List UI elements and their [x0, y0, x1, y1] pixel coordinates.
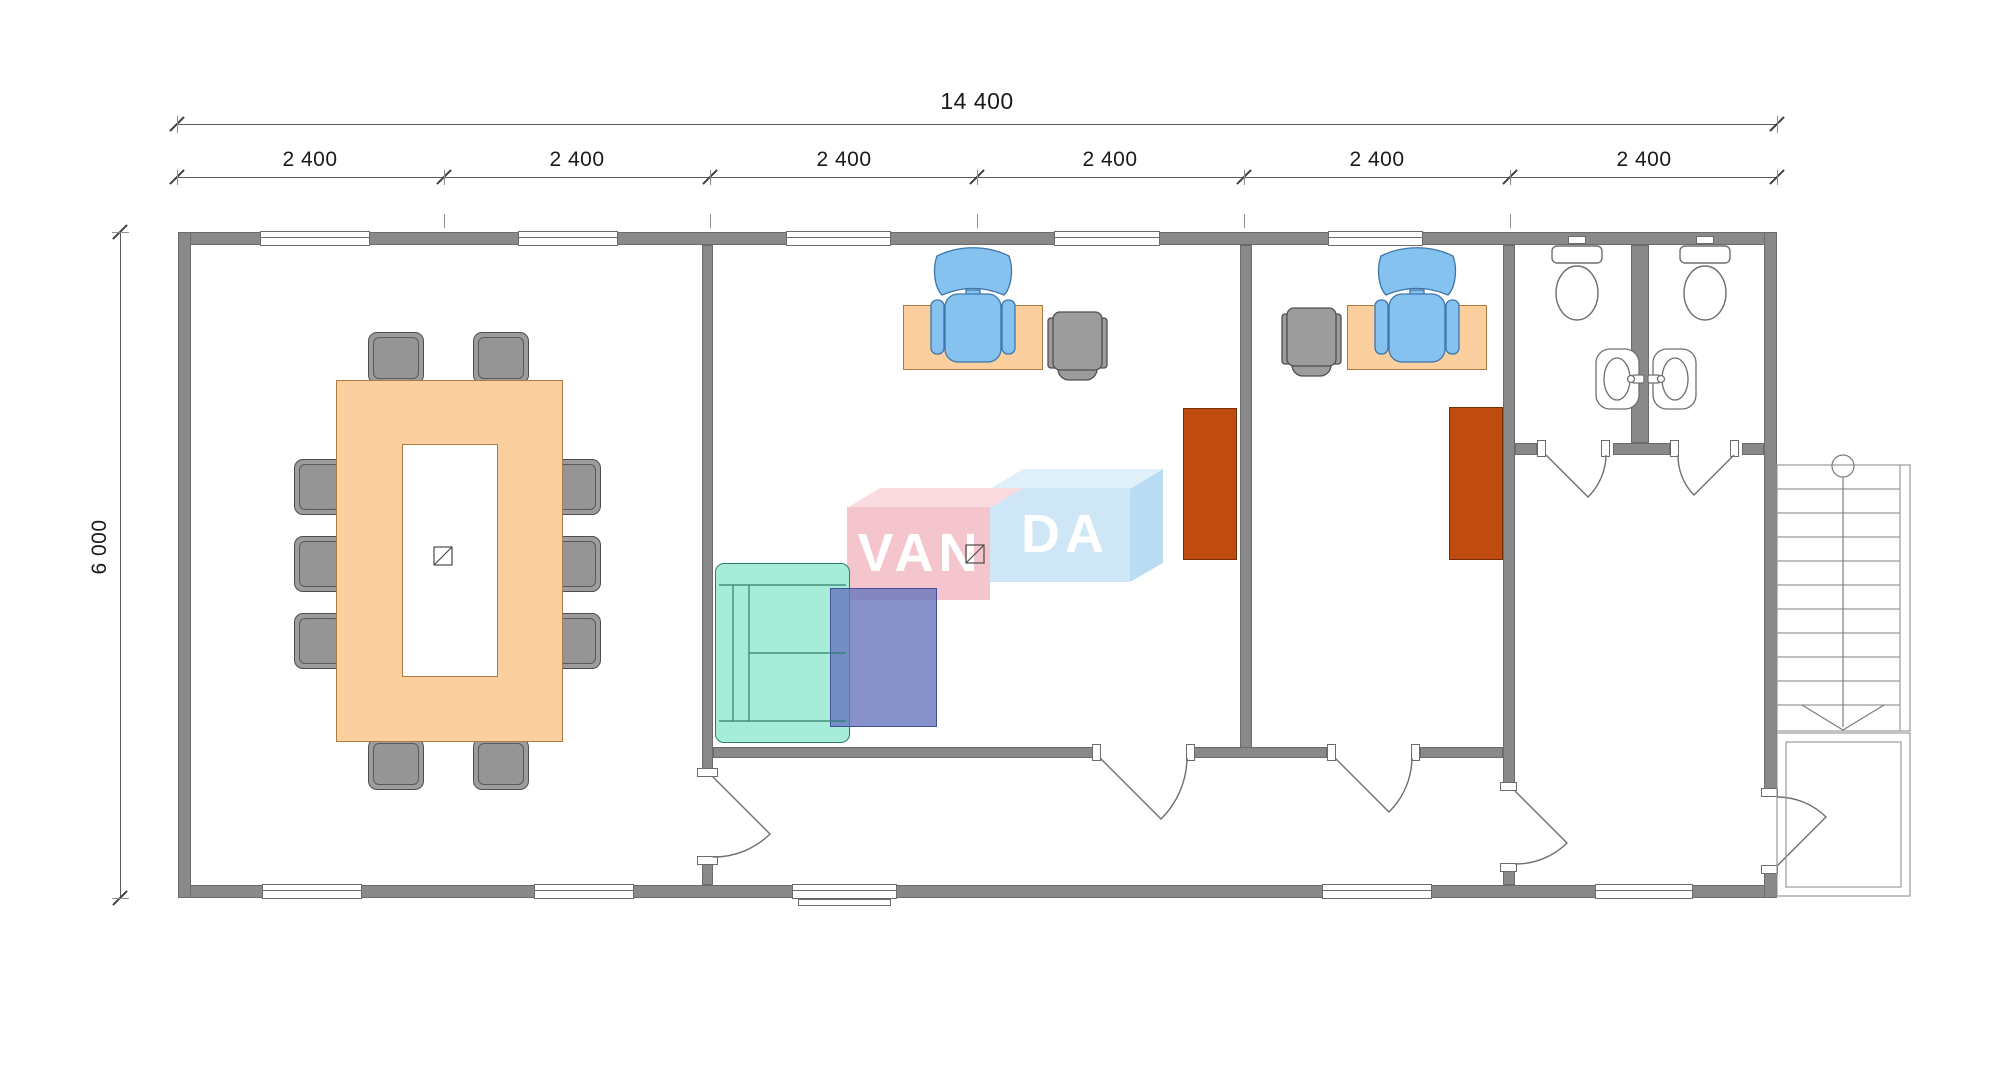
- dim-ext: [112, 232, 129, 233]
- sofa-seams: [719, 585, 846, 721]
- entry-porch: [1777, 733, 1910, 896]
- dim-bay-5: 2 400: [1317, 148, 1437, 172]
- door-wc-stall-left: [1546, 455, 1606, 497]
- door-conference: [713, 777, 770, 857]
- dim-ext: [710, 214, 711, 228]
- guest-chair: [1282, 308, 1341, 376]
- dim-ext: [177, 170, 178, 185]
- dim-ext: [1510, 170, 1511, 185]
- dim-line-total: [177, 124, 1777, 125]
- dim-ext: [177, 116, 178, 133]
- sink: [1596, 349, 1644, 409]
- stair-direction-arrow: [1802, 455, 1884, 730]
- office-chair: [931, 248, 1015, 362]
- column-marker: [434, 547, 452, 565]
- staircase: [1777, 455, 1910, 731]
- dim-ext: [1777, 170, 1778, 185]
- dim-bay-3: 2 400: [784, 148, 904, 172]
- door-bathroom-hall: [1515, 791, 1567, 864]
- dim-ext: [977, 170, 978, 185]
- door-office-2: [1335, 758, 1412, 812]
- sink: [1648, 349, 1696, 409]
- dim-line-height: [120, 232, 121, 898]
- dim-ext: [1777, 116, 1778, 133]
- door-wc-stall-right: [1678, 455, 1734, 495]
- dim-ext: [444, 170, 445, 185]
- dim-ext: [1244, 170, 1245, 185]
- dim-ext: [1244, 214, 1245, 228]
- dim-total-width: 14 400: [877, 88, 1077, 115]
- dim-ext: [1510, 214, 1511, 228]
- door-exterior-right: [1777, 797, 1826, 866]
- toilet: [1680, 246, 1730, 320]
- dim-ext: [112, 898, 129, 899]
- office-chair: [1375, 248, 1459, 362]
- dim-ext: [710, 170, 711, 185]
- dim-ext: [977, 214, 978, 228]
- toilet: [1552, 246, 1602, 320]
- floor-plan-canvas: VAN DA: [0, 0, 2000, 1076]
- door-office-1: [1100, 758, 1187, 819]
- guest-chair: [1048, 312, 1107, 380]
- dim-ext: [444, 214, 445, 228]
- dim-bay-1: 2 400: [250, 148, 370, 172]
- dim-bay-2: 2 400: [517, 148, 637, 172]
- column-marker: [966, 545, 984, 563]
- dim-bay-6: 2 400: [1584, 148, 1704, 172]
- dim-total-height: 6 000: [88, 502, 112, 592]
- dim-bay-4: 2 400: [1050, 148, 1170, 172]
